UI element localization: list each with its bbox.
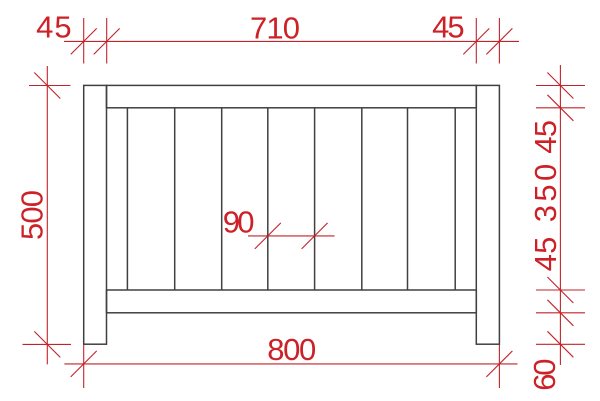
svg-text:800: 800 xyxy=(267,332,316,367)
svg-text:350: 350 xyxy=(528,164,563,223)
svg-text:60: 60 xyxy=(527,358,562,390)
svg-text:45: 45 xyxy=(528,237,563,272)
svg-text:500: 500 xyxy=(14,190,49,240)
svg-text:45: 45 xyxy=(36,10,72,45)
svg-text:45: 45 xyxy=(432,9,465,44)
svg-text:710: 710 xyxy=(250,10,300,45)
svg-text:90: 90 xyxy=(223,205,255,240)
svg-text:45: 45 xyxy=(528,120,563,154)
